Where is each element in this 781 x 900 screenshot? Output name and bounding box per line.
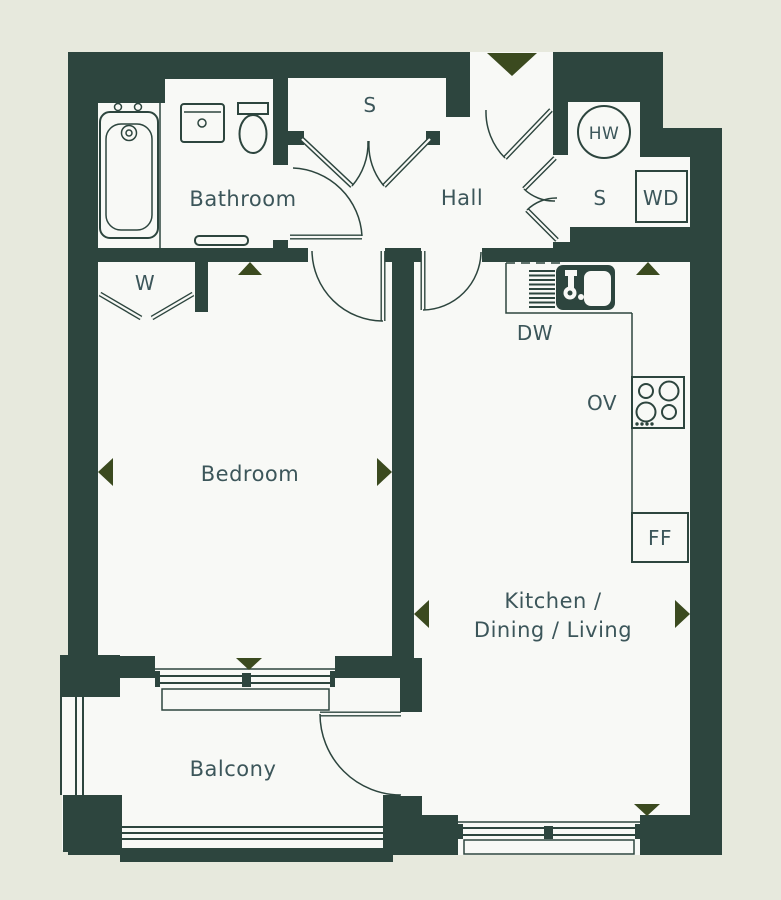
fridge-freezer-label: FF <box>648 526 672 550</box>
hall-store-left-post <box>288 131 304 145</box>
bedroom-door-opening <box>308 246 385 264</box>
corner-notch <box>663 30 781 128</box>
kitchen-window <box>458 815 640 855</box>
kitchen-door-opening <box>421 246 482 264</box>
balcony-bottom-edge <box>120 848 393 862</box>
kitchen-window-jamb <box>458 824 463 839</box>
hall-label: Hall <box>441 186 483 210</box>
sink-bowl <box>584 271 611 306</box>
balcony-top-left-pier <box>60 655 120 697</box>
dishwasher-label: DW <box>517 321 553 345</box>
kitchen-label-line2: Dining / Living <box>474 618 632 642</box>
wardrobe-stub-wall <box>195 262 208 312</box>
hall-store-label: S <box>363 93 376 117</box>
bathroom-shelf-notch <box>165 79 273 103</box>
kitchen-window-jamb <box>635 824 640 839</box>
wardrobe-label: W <box>135 271 155 295</box>
sink-tap-dial-center <box>568 291 573 296</box>
sink-tap-knob <box>578 294 584 300</box>
hot-water-label: HW <box>589 124 620 144</box>
bedroom-label: Bedroom <box>201 462 299 486</box>
balcony-bottom-left-pier <box>63 795 122 852</box>
bedroom-window-jamb <box>155 671 160 687</box>
bedroom-window-mullion <box>242 673 251 687</box>
bedroom-kitchen-divider-wall <box>392 248 414 658</box>
oven-label: OV <box>587 391 617 415</box>
bedroom-window-wall-right <box>335 656 414 678</box>
bathroom-label: Bathroom <box>189 187 296 211</box>
floor-plan-svg: Bathroom S Hall HW S WD W Bedroom DW OV … <box>0 0 781 900</box>
bedroom-interior <box>98 262 392 658</box>
entrance-left-post <box>446 52 470 117</box>
sink-tap-head <box>565 270 577 276</box>
floor-plan: Bathroom S Hall HW S WD W Bedroom DW OV … <box>0 0 781 900</box>
kitchen-window-mullion <box>544 826 553 839</box>
balcony-label: Balcony <box>190 757 277 781</box>
balcony-door-opening <box>400 712 422 796</box>
balcony-right-pier <box>383 795 422 855</box>
kitchen-label-line1: Kitchen / <box>504 589 602 613</box>
bedroom-window-jamb <box>330 671 335 687</box>
utility-store-label: S <box>593 186 606 210</box>
drainer-lines <box>529 271 555 307</box>
washer-dryer-label: WD <box>643 186 679 210</box>
